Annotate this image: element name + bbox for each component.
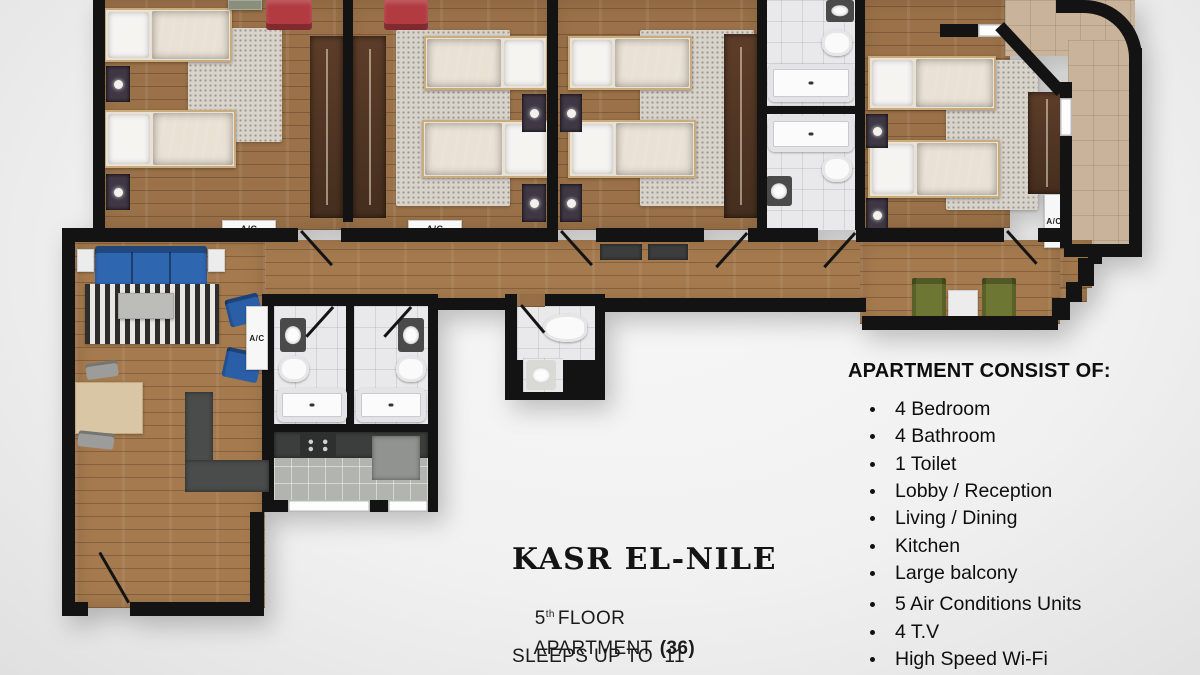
wall-segment xyxy=(765,106,857,114)
wall-segment xyxy=(341,228,558,242)
title-block: KASR EL-NILE xyxy=(512,542,777,577)
bed-pillow xyxy=(572,40,612,86)
bed xyxy=(868,140,1000,198)
consist-heading: APARTMENT CONSIST OF: xyxy=(848,360,1178,383)
toilet-fixture xyxy=(396,356,426,382)
wall-segment xyxy=(600,298,866,312)
kitchen-window xyxy=(388,500,428,512)
bed xyxy=(104,110,236,168)
bed-duvet xyxy=(425,123,502,175)
wardrobe xyxy=(353,36,386,218)
apartment-title: KASR EL-NILE xyxy=(512,542,777,577)
bed xyxy=(568,36,692,90)
consist-list: 4 Bedroom 4 Bathroom 1 Toilet Lobby / Re… xyxy=(848,396,1178,673)
bathroom-sink xyxy=(398,318,424,352)
wall-segment xyxy=(93,0,105,230)
nightstand xyxy=(522,184,546,222)
bed-duvet xyxy=(153,113,233,165)
wall-segment xyxy=(596,228,704,242)
wall-segment xyxy=(62,228,298,242)
bed-pillow xyxy=(872,60,913,106)
bathtub xyxy=(768,116,854,152)
stove xyxy=(300,433,336,457)
wall-segment xyxy=(62,228,75,616)
kitchen-counter xyxy=(185,460,269,492)
wall-segment xyxy=(130,602,264,616)
wardrobe xyxy=(310,36,343,218)
bed-duvet xyxy=(917,143,997,195)
nightstand xyxy=(866,114,888,148)
screenshot: A/C A/C A/C xyxy=(0,0,1200,675)
wall-segment xyxy=(855,0,865,230)
wall-segment xyxy=(862,316,1058,330)
wall-segment xyxy=(757,0,767,230)
sleeps-line: SLEEPS UP TO 11 xyxy=(512,646,685,668)
list-item: Kitchen xyxy=(848,532,1178,559)
nightstand xyxy=(866,198,888,232)
armchair-red xyxy=(266,0,312,30)
wall-segment xyxy=(250,512,264,604)
list-item: Large balcony xyxy=(848,560,1178,587)
lobby-table xyxy=(948,290,978,318)
list-item: Lobby / Reception xyxy=(848,478,1178,505)
bed-duvet xyxy=(615,39,689,87)
balcony-door xyxy=(1060,98,1072,136)
bathroom-sink xyxy=(826,0,854,22)
ac-unit-living-room: A/C xyxy=(246,306,268,370)
nightstand xyxy=(106,66,130,102)
bathtub xyxy=(768,64,854,102)
list-item: 5 Air Conditions Units xyxy=(848,591,1178,618)
bed-pillow xyxy=(108,12,149,58)
toilet-sink xyxy=(526,360,556,390)
nightstand xyxy=(560,94,582,132)
tv-console xyxy=(600,244,642,260)
bathtub xyxy=(277,388,347,422)
apartment-consist-panel: APARTMENT CONSIST OF: 4 Bedroom 4 Bathro… xyxy=(848,360,1178,673)
bathroom-sink xyxy=(766,176,792,206)
wall-segment xyxy=(428,298,508,310)
wall-segment xyxy=(940,24,982,37)
sofa xyxy=(95,246,207,288)
bed-pillow xyxy=(108,114,150,164)
wall-segment xyxy=(748,228,818,242)
kitchen-window xyxy=(288,500,370,512)
toilet-fixture xyxy=(279,356,309,382)
wardrobe xyxy=(724,34,758,218)
nightstand xyxy=(106,174,130,210)
tv-console xyxy=(648,244,688,260)
bed xyxy=(868,56,996,110)
list-item: 1 Toilet xyxy=(848,451,1178,478)
bed-duvet xyxy=(152,11,229,59)
nightstand xyxy=(560,184,582,222)
wall-segment xyxy=(343,0,353,222)
bed-duvet xyxy=(616,123,693,175)
list-item: Living / Dining xyxy=(848,505,1178,532)
wall-segment xyxy=(856,228,1004,242)
armchair-green xyxy=(912,278,946,318)
list-item: 4 Bedroom xyxy=(848,396,1178,423)
bathroom-sink xyxy=(280,318,306,352)
wall-segment xyxy=(62,602,88,616)
armchair-green xyxy=(982,278,1016,318)
wall-segment xyxy=(1129,48,1142,248)
bed xyxy=(104,8,232,62)
nightstand xyxy=(522,94,546,132)
bed-pillow xyxy=(872,144,914,194)
wall-segment xyxy=(1038,228,1062,242)
bed-pillow xyxy=(504,40,544,86)
bed xyxy=(568,120,696,178)
bed-duvet xyxy=(916,59,993,107)
toilet-fixture xyxy=(822,30,852,56)
list-item: High Speed Wi-Fi xyxy=(848,646,1178,673)
toilet-fixture xyxy=(822,156,852,182)
refrigerator xyxy=(372,436,420,480)
side-table xyxy=(77,249,94,272)
armchair-red xyxy=(384,0,428,30)
coffee-table xyxy=(118,293,174,319)
list-item: 4 Bathroom xyxy=(848,423,1178,450)
wall-segment xyxy=(1064,244,1142,257)
balcony-floor-side xyxy=(1068,40,1132,252)
bed xyxy=(424,36,548,90)
wall-segment xyxy=(547,0,558,230)
dining-table xyxy=(75,382,143,434)
side-table xyxy=(228,0,262,10)
bed-duvet xyxy=(427,39,501,87)
side-table xyxy=(208,249,225,272)
list-item: 4 T.V xyxy=(848,618,1178,645)
bathtub xyxy=(356,388,426,422)
toilet-fixture xyxy=(543,314,587,342)
